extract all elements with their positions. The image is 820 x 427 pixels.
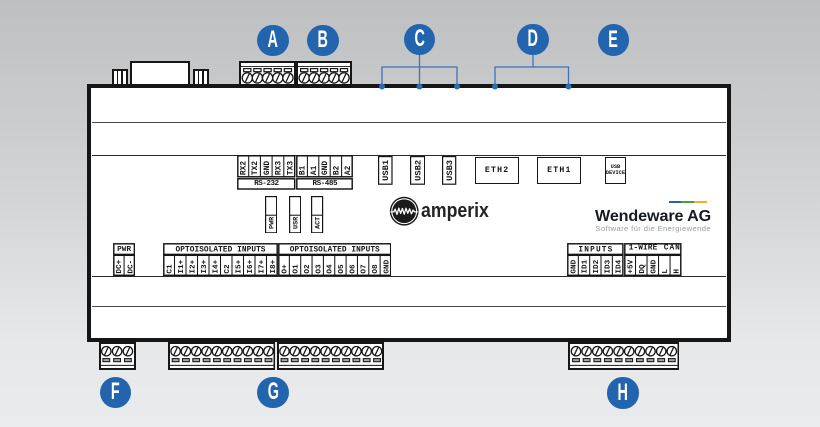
svg-text:OPTOISOLATED INPUTS: OPTOISOLATED INPUTS: [289, 246, 379, 254]
svg-text:O8: O8: [372, 264, 380, 274]
svg-text:I6+: I6+: [246, 259, 254, 273]
svg-text:RX3: RX3: [275, 161, 284, 175]
svg-text:USB3: USB3: [445, 160, 455, 181]
svg-text:+5V: +5V: [627, 259, 635, 273]
svg-text:CAN: CAN: [664, 244, 680, 252]
svg-text:ID4: ID4: [616, 259, 624, 273]
svg-text:ACT: ACT: [315, 217, 323, 229]
svg-text:O5: O5: [338, 264, 346, 274]
svg-text:DC+: DC+: [116, 259, 124, 273]
svg-text:A1: A1: [309, 166, 318, 176]
svg-text:O2: O2: [304, 264, 312, 274]
svg-text:H: H: [674, 268, 682, 273]
svg-text:RS-485: RS-485: [312, 180, 337, 188]
svg-text:O1: O1: [292, 264, 300, 274]
svg-text:USB1: USB1: [381, 160, 391, 181]
svg-text:OPTOISOLATED INPUTS: OPTOISOLATED INPUTS: [175, 246, 265, 254]
svg-text:I7+: I7+: [258, 259, 266, 273]
svg-text:DQ: DQ: [639, 264, 647, 274]
svg-text:USB2: USB2: [413, 160, 423, 181]
svg-text:A2: A2: [343, 166, 352, 176]
svg-text:USR: USR: [292, 216, 300, 229]
svg-text:GND: GND: [321, 161, 330, 175]
svg-text:I2+: I2+: [189, 259, 197, 273]
svg-text:L: L: [662, 268, 670, 273]
svg-text:GND: GND: [571, 259, 579, 273]
svg-text:ID3: ID3: [605, 259, 613, 273]
svg-text:ID2: ID2: [593, 259, 601, 273]
svg-text:RS-232: RS-232: [254, 180, 279, 188]
svg-text:O4: O4: [326, 264, 334, 274]
svg-text:GND: GND: [263, 161, 272, 175]
svg-text:I3+: I3+: [200, 259, 208, 273]
svg-text:PWR: PWR: [268, 216, 276, 229]
svg-text:I8+: I8+: [269, 259, 277, 273]
svg-text:GND: GND: [383, 259, 391, 273]
svg-text:1-WIRE: 1-WIRE: [629, 244, 658, 252]
svg-text:PWR: PWR: [117, 246, 131, 254]
svg-text:I5+: I5+: [235, 259, 243, 273]
svg-text:INPUTS: INPUTS: [579, 246, 613, 254]
svg-text:GND: GND: [651, 259, 659, 273]
svg-text:DC-: DC-: [127, 260, 135, 274]
svg-text:TX2: TX2: [251, 161, 260, 175]
svg-text:B2: B2: [332, 166, 341, 176]
svg-text:I4+: I4+: [212, 259, 220, 273]
svg-text:RX2: RX2: [240, 161, 249, 175]
svg-text:O+: O+: [281, 264, 289, 274]
svg-text:TX3: TX3: [286, 161, 295, 175]
svg-text:C2: C2: [223, 264, 231, 274]
svg-text:I1+: I1+: [177, 259, 185, 273]
svg-text:B1: B1: [298, 166, 307, 176]
svg-text:C1: C1: [166, 264, 174, 274]
svg-text:O3: O3: [315, 264, 323, 274]
svg-text:O6: O6: [349, 264, 357, 274]
svg-text:O7: O7: [360, 264, 368, 274]
svg-text:ID1: ID1: [582, 259, 590, 273]
